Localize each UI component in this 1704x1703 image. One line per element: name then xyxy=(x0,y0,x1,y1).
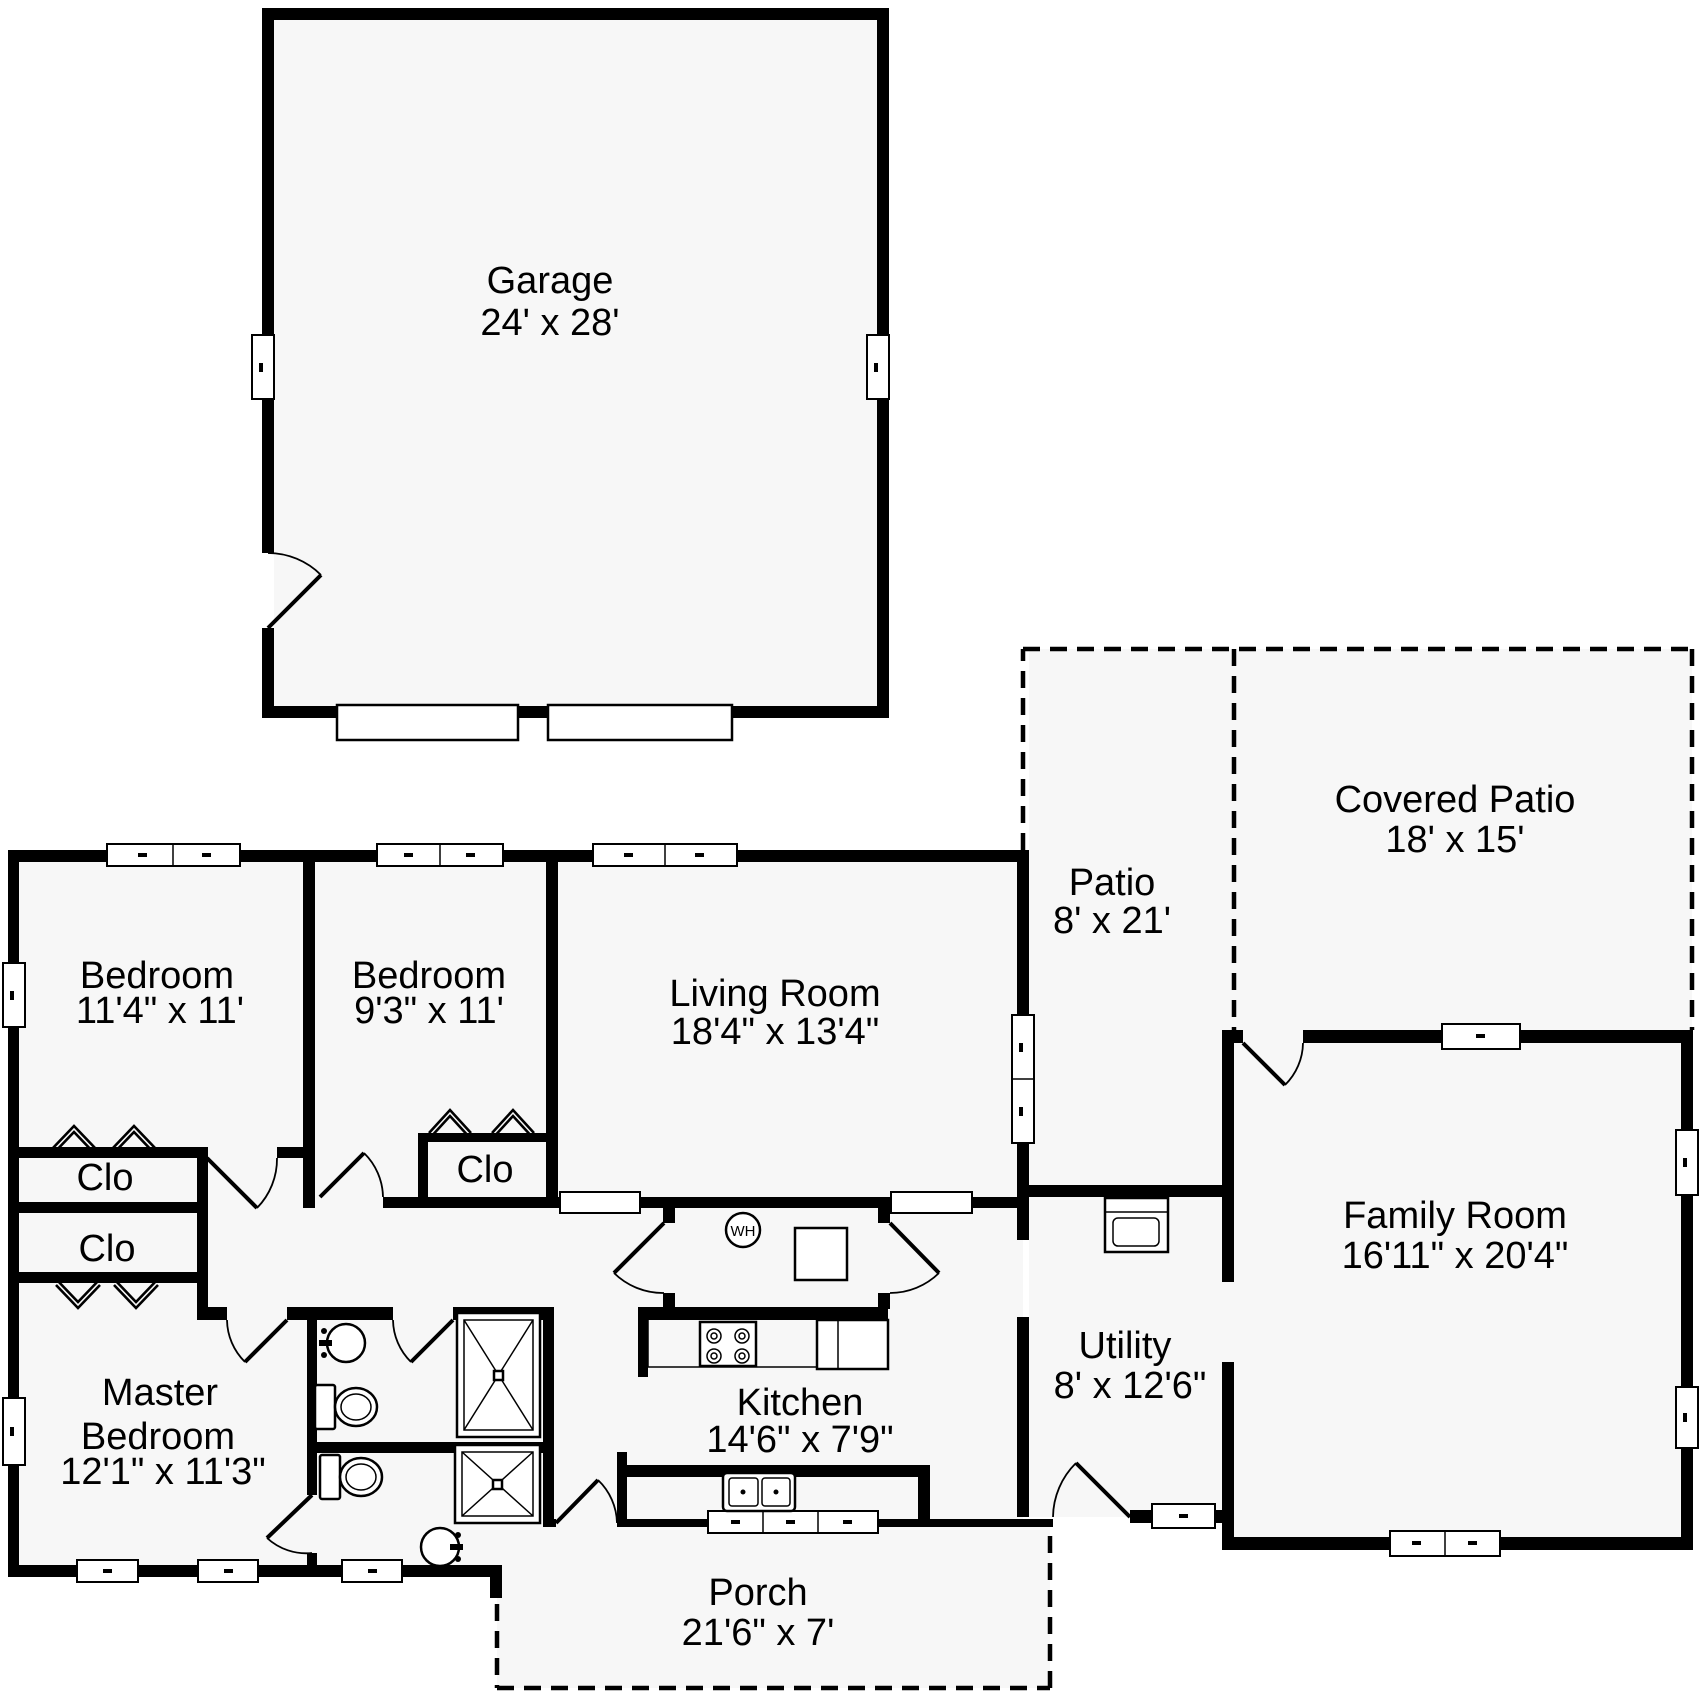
window-symbol xyxy=(708,1511,878,1533)
wall-segment xyxy=(262,8,889,20)
wall-segment xyxy=(1029,1185,1234,1197)
closet-label: Clo xyxy=(78,1228,135,1270)
wall-segment xyxy=(617,1452,627,1527)
wall-segment xyxy=(638,1197,893,1208)
wall-segment xyxy=(878,1293,890,1309)
window-symbol xyxy=(3,1398,25,1465)
patio-label: Patio xyxy=(1069,862,1156,904)
wall-segment xyxy=(1681,1030,1693,1550)
porch-label: Porch xyxy=(708,1572,807,1614)
family-room-floor xyxy=(1234,1037,1681,1537)
shower-icon xyxy=(455,1445,540,1523)
window-symbol xyxy=(867,335,889,399)
wall-segment xyxy=(878,1519,1053,1527)
shower-icon xyxy=(457,1313,540,1437)
wall-segment xyxy=(197,1307,227,1320)
water-heater-label: WH xyxy=(731,1223,756,1240)
wall-segment xyxy=(543,1307,554,1527)
master-bedroom-label-line1: Master xyxy=(102,1372,218,1414)
covered-patio-label: Covered Patio xyxy=(1335,779,1576,821)
master-bedroom-dims: 12'1" x 11'3" xyxy=(60,1451,266,1493)
wall-segment xyxy=(8,850,19,1577)
wall-segment xyxy=(317,1307,393,1320)
window-symbol xyxy=(252,335,274,399)
wall-segment xyxy=(8,1272,208,1283)
wall-segment xyxy=(617,1519,708,1527)
refrigerator-icon xyxy=(817,1320,888,1369)
window-symbol xyxy=(1676,1130,1698,1195)
window-symbol xyxy=(77,1560,138,1582)
garage-door-icon xyxy=(337,705,518,740)
cased-opening xyxy=(891,1192,972,1213)
window-symbol xyxy=(1012,1015,1034,1143)
toilet-icon xyxy=(320,1455,382,1499)
window-symbol xyxy=(1676,1387,1698,1448)
wall-segment xyxy=(1017,1317,1029,1517)
patio-dims: 8' x 21' xyxy=(1053,900,1171,942)
wall-segment xyxy=(546,1519,556,1527)
wall-segment xyxy=(1222,1362,1234,1550)
bedroom2-dims: 9'3" x 11' xyxy=(354,990,504,1032)
living-room-label: Living Room xyxy=(669,973,880,1015)
window-symbol xyxy=(1442,1024,1520,1049)
utility-dims: 8' x 12'6" xyxy=(1054,1365,1207,1407)
living-room-dims: 18'4" x 13'4" xyxy=(671,1011,879,1053)
wall-segment xyxy=(546,862,558,1208)
range-icon xyxy=(700,1322,756,1366)
wall-segment xyxy=(418,1133,428,1203)
window-symbol xyxy=(1152,1504,1215,1528)
window-symbol xyxy=(3,963,25,1027)
wall-segment xyxy=(878,1208,890,1223)
water-heater-icon: WH xyxy=(726,1213,760,1247)
wall-segment xyxy=(1222,1030,1234,1282)
wall-segment xyxy=(8,1202,208,1213)
family-room-dims: 16'11" x 20'4" xyxy=(1342,1235,1569,1277)
window-symbol xyxy=(1390,1531,1500,1556)
kitchen-dims: 14'6" x 7'9" xyxy=(706,1419,893,1461)
wall-segment xyxy=(1017,1143,1029,1240)
wall-segment xyxy=(490,1565,502,1598)
wall-segment xyxy=(277,1147,315,1158)
furnace-icon xyxy=(795,1228,847,1280)
wall-segment xyxy=(638,1307,888,1320)
wall-segment xyxy=(918,1465,930,1527)
wall-segment xyxy=(262,8,274,553)
window-symbol xyxy=(342,1560,402,1582)
wall-segment xyxy=(663,1293,675,1309)
utility-label: Utility xyxy=(1079,1325,1172,1367)
bathroom-sink-icon xyxy=(319,1324,365,1362)
wall-segment xyxy=(307,1553,317,1577)
kitchen-label: Kitchen xyxy=(737,1382,864,1424)
wall-segment xyxy=(638,1307,648,1377)
wall-segment xyxy=(1222,1030,1243,1043)
washer-icon xyxy=(1105,1198,1168,1252)
garage-floor xyxy=(274,20,877,710)
window-symbol xyxy=(198,1560,258,1582)
porch-dims: 21'6" x 7' xyxy=(682,1612,835,1654)
cased-opening xyxy=(560,1192,640,1213)
floor-plan-canvas: WH xyxy=(0,0,1704,1703)
garage-dims: 24' x 28' xyxy=(480,302,619,344)
garage-door-icon xyxy=(548,705,732,740)
covered-patio-dims: 18' x 15' xyxy=(1385,819,1524,861)
window-symbol xyxy=(593,844,737,866)
bathroom-sink-icon xyxy=(421,1528,463,1566)
closet-label: Clo xyxy=(76,1157,133,1199)
wall-segment xyxy=(262,628,274,718)
wall-segment xyxy=(197,1147,208,1320)
wall-segment xyxy=(663,1208,675,1223)
wall-segment xyxy=(383,1197,562,1208)
garage-label: Garage xyxy=(487,260,614,302)
bedroom1-dims: 11'4" x 11' xyxy=(76,990,244,1032)
floor-plan-drawing: WH xyxy=(0,0,1704,1703)
closet-label: Clo xyxy=(456,1149,513,1191)
window-symbol xyxy=(107,844,240,866)
toilet-icon xyxy=(315,1385,377,1429)
kitchen-sink-icon xyxy=(723,1473,795,1511)
window-symbol xyxy=(377,844,503,866)
wall-segment xyxy=(1017,862,1029,1015)
family-room-label: Family Room xyxy=(1343,1195,1567,1237)
